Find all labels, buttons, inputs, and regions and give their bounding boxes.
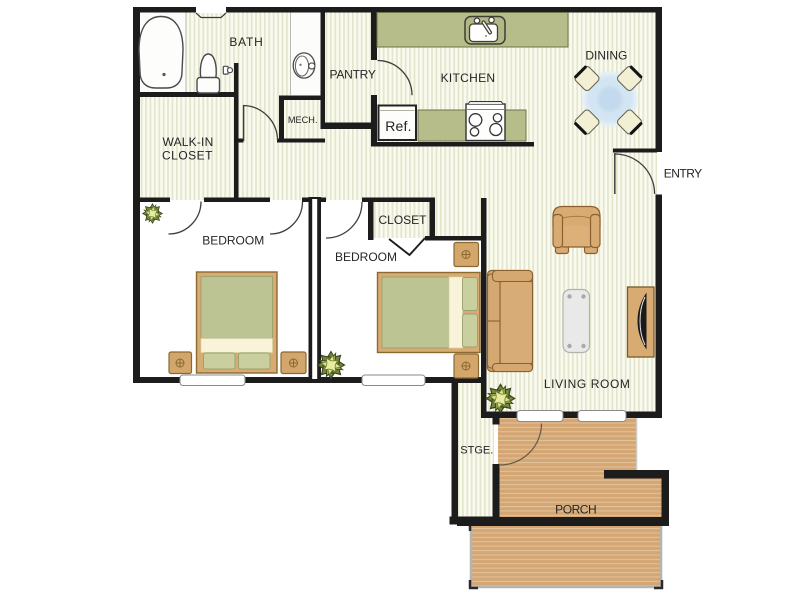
svg-text:CLOSET: CLOSET xyxy=(162,149,213,163)
svg-text:BEDROOM: BEDROOM xyxy=(202,234,264,248)
svg-text:MECH.: MECH. xyxy=(288,115,318,125)
svg-text:BATH: BATH xyxy=(229,35,263,49)
svg-text:BEDROOM: BEDROOM xyxy=(335,250,397,264)
svg-text:PORCH: PORCH xyxy=(555,503,596,517)
svg-text:CLOSET: CLOSET xyxy=(378,213,427,227)
svg-text:LIVING ROOM: LIVING ROOM xyxy=(544,377,631,391)
svg-text:WALK-IN: WALK-IN xyxy=(163,135,214,149)
svg-text:DINING: DINING xyxy=(585,48,627,62)
svg-text:KITCHEN: KITCHEN xyxy=(441,71,496,85)
svg-text:PANTRY: PANTRY xyxy=(330,67,376,81)
svg-text:STGE.: STGE. xyxy=(460,444,493,456)
svg-text:Ref.: Ref. xyxy=(385,118,411,134)
svg-text:ENTRY: ENTRY xyxy=(664,167,702,181)
